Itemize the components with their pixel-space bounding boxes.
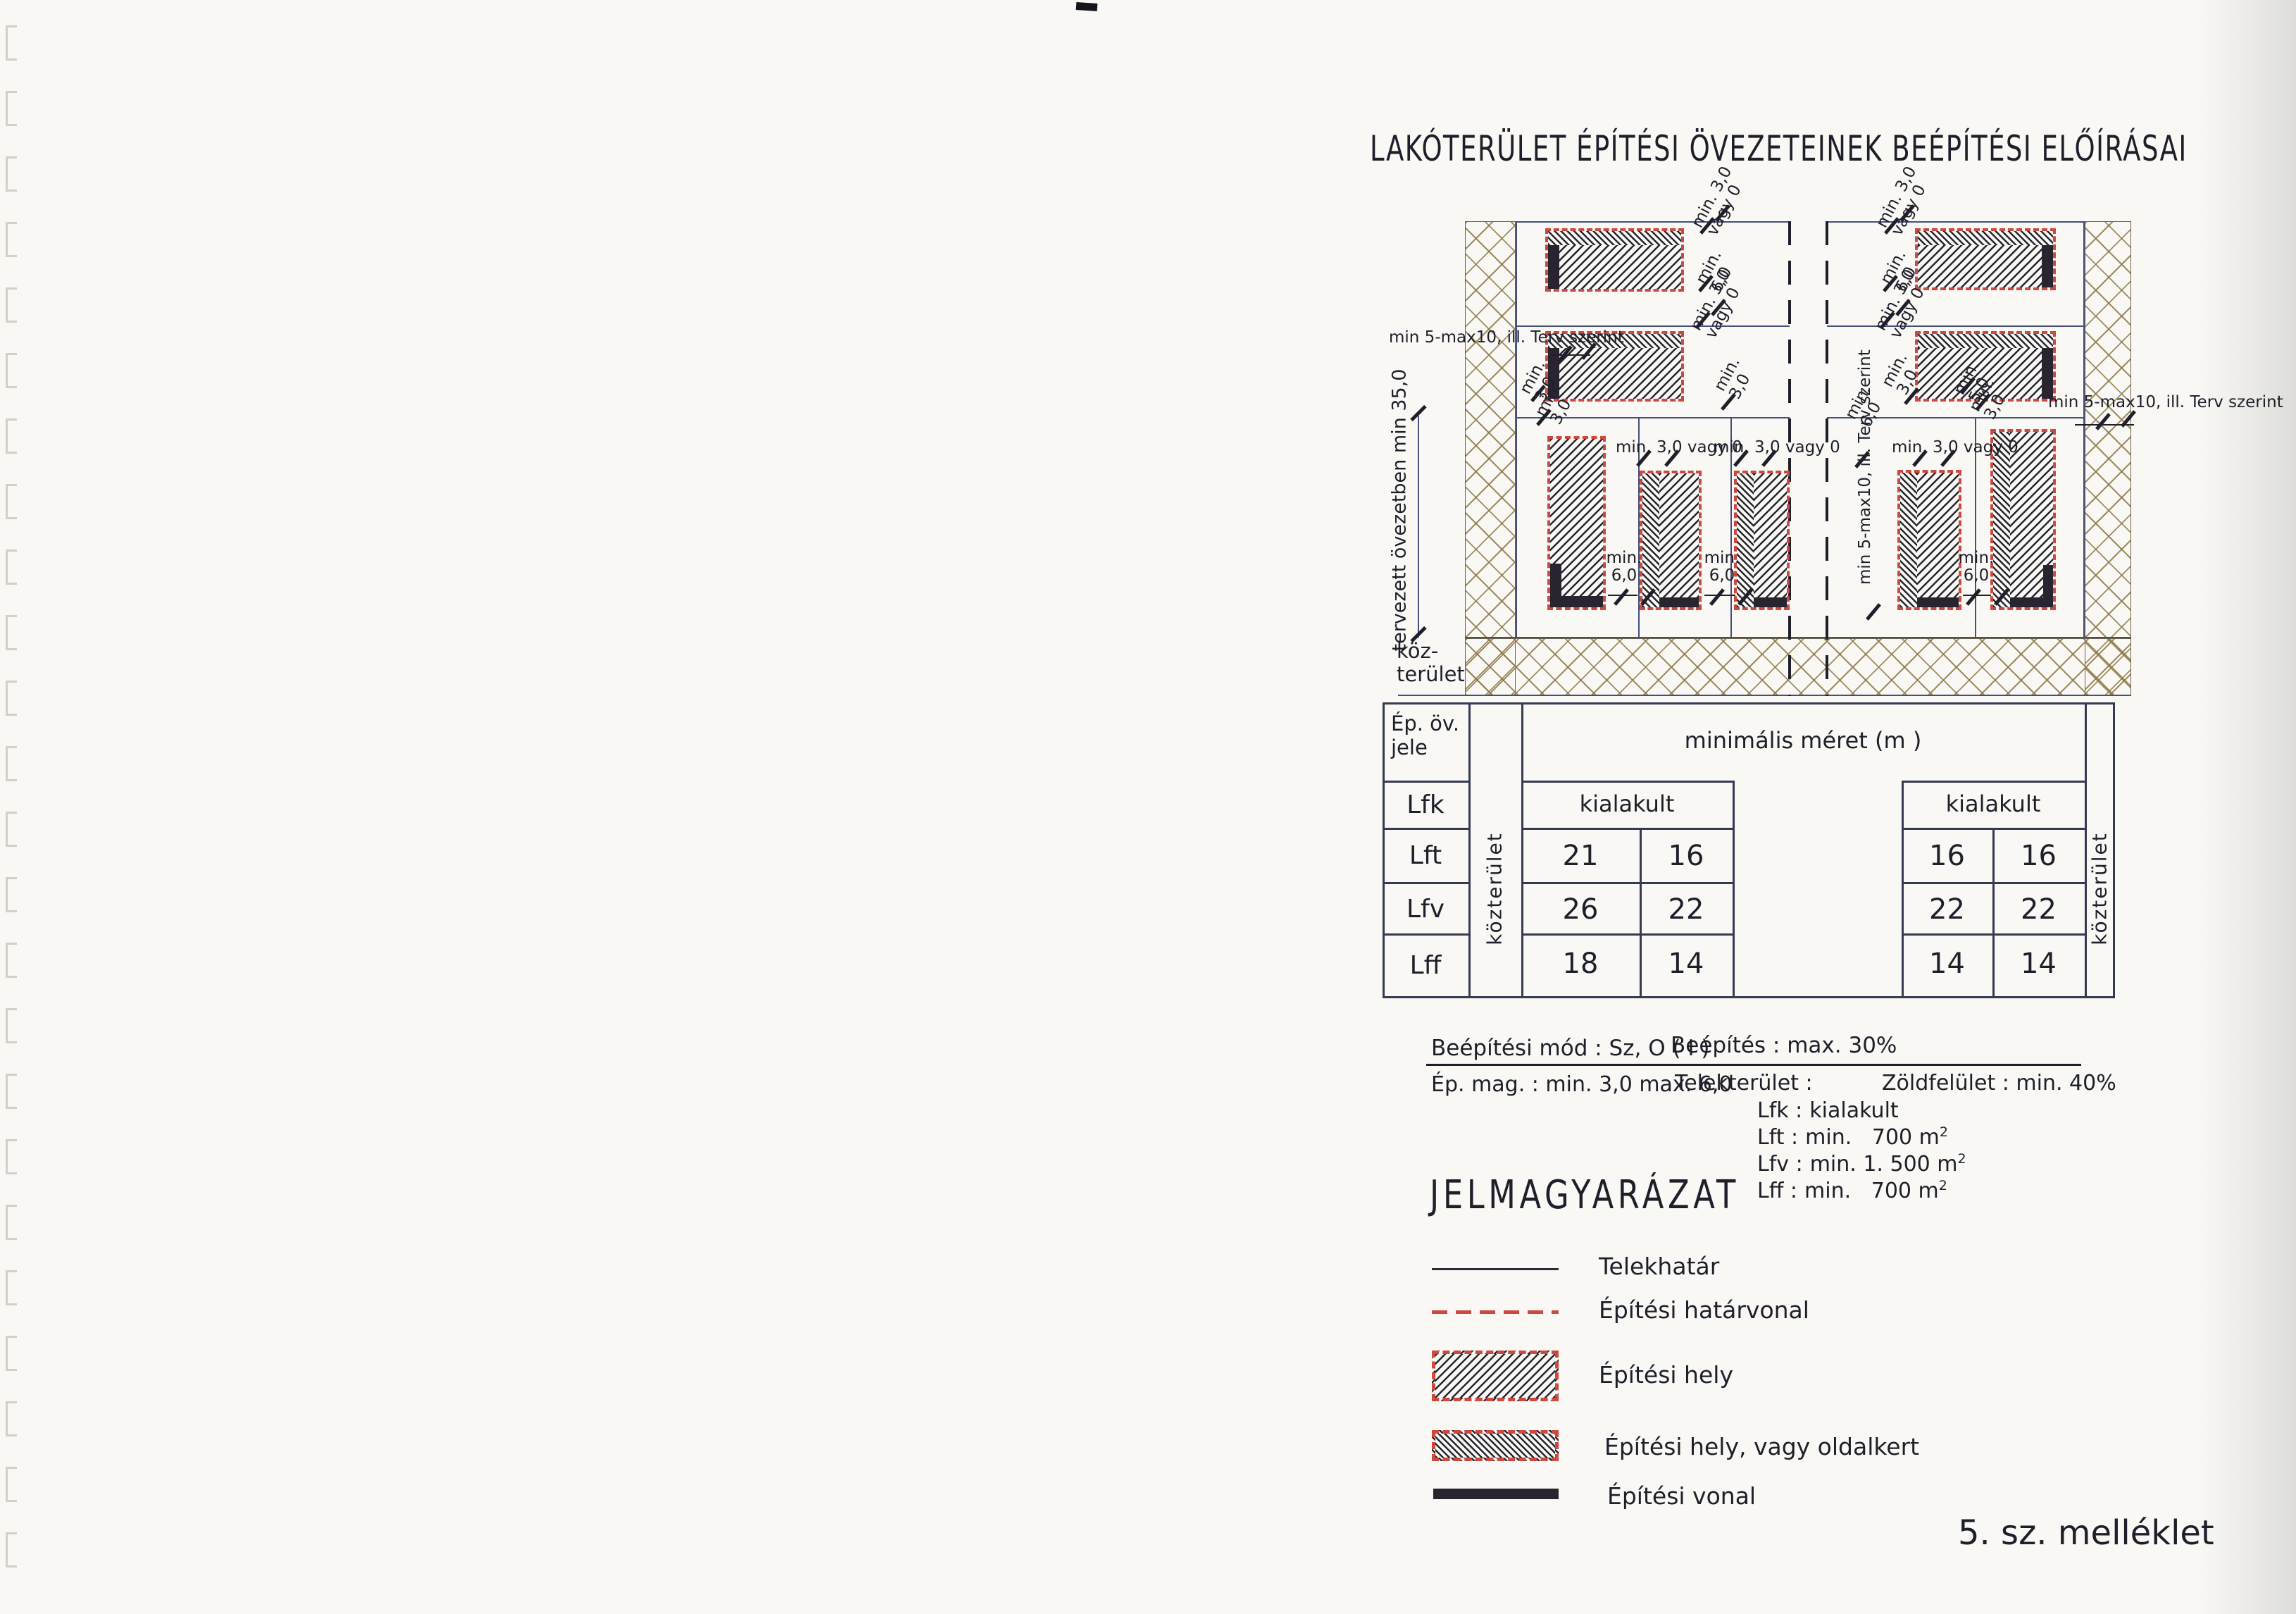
lot-boundary-line	[1827, 221, 2085, 223]
table-cell: 22	[1992, 893, 2085, 926]
punch-mark	[6, 812, 17, 847]
lot-boundary-dashed-line	[1788, 221, 1791, 696]
plot-size-item: Lft :min. 700 m2	[1757, 1124, 1948, 1150]
table-border	[1383, 828, 1471, 830]
legend-swatch-epitesi-hely	[1432, 1351, 1559, 1401]
building-area-hatch	[1659, 473, 1699, 607]
punch-mark	[6, 418, 17, 454]
lot-boundary-line	[1516, 325, 1790, 327]
lot-boundary-line	[1827, 325, 2085, 327]
dimension-tick	[1866, 603, 1881, 621]
punch-mark	[6, 1008, 17, 1043]
building-line-bar	[1550, 564, 1561, 607]
table-side-label-kozterulet: közterület	[2088, 819, 2111, 960]
building-zone-block	[1897, 470, 1961, 610]
table-cell: 16	[1902, 840, 1992, 872]
punch-mark	[6, 287, 17, 323]
punch-mark	[6, 25, 17, 61]
plot-size-item: Lfv :min. 1. 500 m2	[1757, 1151, 1966, 1177]
table-border	[1468, 702, 1471, 998]
dimension-label: min. 3,0vagy 0	[1689, 163, 1750, 238]
legend-swatch-epitesi-vonal	[1433, 1489, 1559, 1499]
attachment-note: 5. sz. melléklet	[1958, 1513, 2214, 1553]
table-cell: 22	[1902, 893, 1992, 926]
dimension-label: min. 3,0 vagy 0	[1714, 438, 1840, 457]
table-row-label: Lfv	[1383, 895, 1468, 924]
table-border	[2113, 702, 2115, 998]
table-cell: 14	[1992, 948, 2085, 980]
legend-label: Telekhatár	[1599, 1253, 1719, 1280]
lot-boundary-line	[1516, 221, 1790, 223]
dimension-tick	[1721, 393, 1736, 411]
table-border	[2085, 702, 2087, 998]
table-row-label: Lfk	[1383, 790, 1468, 819]
building-line-bar	[1754, 597, 1787, 607]
side-yard-band	[1918, 231, 2053, 245]
legend-swatch-epitesi-hatarvonal	[1432, 1310, 1559, 1314]
scan-speck	[1076, 2, 1098, 11]
table-cell: 16	[1640, 840, 1733, 872]
building-line-bar	[1659, 597, 1699, 607]
side-yard-band	[1900, 473, 1917, 607]
dimension-label: min.6,0	[1955, 550, 1997, 585]
table-border	[1521, 882, 1735, 884]
building-zone-block	[1545, 228, 1684, 292]
plot-size-item: Lff :min. 700 m2	[1757, 1178, 1947, 1203]
spec-mode: Beépítési mód : Sz, O ( I )	[1431, 1036, 1710, 1061]
spec-plot: Telekterület :	[1675, 1071, 1813, 1095]
punch-mark	[6, 1270, 17, 1305]
dimension-label: min. 3,0 vagy 0	[1892, 438, 2019, 457]
building-zone-block	[1547, 436, 1606, 610]
table-border	[1902, 781, 2087, 783]
table-header-min-size: minimális méret (m )	[1521, 727, 2085, 754]
table-subheader-kialakult: kialakult	[1902, 790, 2085, 817]
legend-label: Építési hely	[1599, 1361, 1733, 1389]
lot-boundary-line	[1465, 637, 2131, 638]
side-yard-band	[1918, 334, 2053, 348]
legend-heading: JELMAGYARÁZAT	[1430, 1172, 1740, 1218]
legend-swatch-epitesi-hely-oldalkert	[1432, 1430, 1559, 1461]
public-area-base-line	[1398, 695, 2131, 696]
building-zone-block	[1915, 228, 2056, 290]
table-cell: 21	[1521, 840, 1640, 872]
page-title: LAKÓTERÜLET ÉPÍTÉSI ÖVEZETEINEK BEÉPÍTÉS…	[1370, 128, 2188, 169]
punch-mark	[6, 1336, 17, 1371]
punch-mark	[6, 1205, 17, 1240]
table-cell: 26	[1521, 893, 1640, 926]
legend-label: Építési hely, vagy oldalkert	[1604, 1433, 1919, 1460]
punch-mark	[6, 943, 17, 978]
scan-edge-shadow	[2197, 0, 2296, 1614]
punch-mark	[6, 91, 17, 126]
lot-boundary-line	[1516, 221, 1517, 638]
spec-coverage: Beépítés : max. 30%	[1671, 1033, 1897, 1058]
table-border	[1733, 781, 1735, 998]
table-cell: 16	[1992, 840, 2085, 872]
table-side-label-kozterulet: közterület	[1483, 819, 1506, 960]
building-area-hatch	[1754, 473, 1787, 607]
dimension-label: min 5-max10, ill. Terv szerint	[2048, 393, 2283, 411]
punch-mark	[6, 615, 17, 650]
punch-mark	[6, 746, 17, 781]
legend-swatch-telekhatar	[1432, 1268, 1559, 1270]
table-cell: 18	[1521, 948, 1640, 980]
punch-mark	[6, 1401, 17, 1436]
public-area-hatch-bottom	[1465, 638, 2131, 696]
dimension-tick	[1614, 588, 1629, 606]
public-area-hatch-right	[2085, 221, 2131, 696]
table-border	[1383, 933, 1471, 936]
table-border	[1902, 828, 2087, 830]
building-line-bar	[1917, 597, 1959, 607]
table-row-label: Lft	[1383, 841, 1468, 870]
table-border	[1383, 996, 2114, 998]
building-area-hatch	[1548, 245, 1681, 289]
table-border	[1521, 933, 1735, 936]
table-cell: 14	[1902, 948, 1992, 980]
punch-mark	[6, 550, 17, 585]
building-line-bar	[2043, 565, 2053, 607]
side-yard-band	[1642, 473, 1659, 607]
table-header-zone-code: Ép. öv. jele	[1391, 712, 1459, 759]
dimension-label: min.6,0	[1701, 550, 1743, 585]
building-area-hatch	[1917, 473, 1959, 607]
punch-mark	[6, 353, 17, 388]
punch-mark	[6, 1532, 17, 1568]
building-line-bar	[2042, 245, 2053, 287]
dimension-label: min 5-max10, ill. Terv szerint	[1389, 328, 1549, 347]
table-cell: 22	[1640, 893, 1733, 926]
punch-mark	[6, 877, 17, 912]
lot-boundary-dashed-line	[1826, 221, 1828, 696]
spec-green: Zöldfelület : min. 40%	[1882, 1071, 2116, 1095]
lot-boundary-line	[2083, 221, 2085, 638]
dimension-line	[1418, 416, 1419, 638]
table-subheader-kialakult: kialakult	[1521, 790, 1733, 817]
building-area-hatch	[1918, 245, 2053, 287]
table-border	[1902, 933, 2087, 936]
dimension-label: min. 3,0vagy 0	[1873, 163, 1935, 238]
table-border	[1521, 828, 1735, 830]
table-row-label: Lff	[1383, 951, 1468, 980]
punch-mark	[6, 222, 17, 257]
document-page: LAKÓTERÜLET ÉPÍTÉSI ÖVEZETEINEK BEÉPÍTÉS…	[0, 0, 2296, 1614]
spec-divider	[1426, 1064, 2081, 1066]
punch-mark	[6, 681, 17, 716]
table-border	[1383, 882, 1471, 884]
table-border	[1521, 781, 1735, 783]
dimension-tick	[1966, 588, 1981, 606]
table-cell: 14	[1640, 948, 1733, 980]
table-border	[1902, 882, 2087, 884]
table-border	[1383, 702, 2114, 704]
building-zone-block	[1734, 471, 1790, 610]
side-yard-band	[1737, 473, 1754, 607]
plot-size-item: Lfk :kialakult	[1757, 1098, 1899, 1123]
axis-dimension-label: tervezett övezetben min 35,0	[1389, 405, 1411, 652]
table-border	[1383, 781, 1471, 783]
building-line-bar	[1548, 245, 1559, 289]
legend-label: Építési határvonal	[1599, 1296, 1809, 1324]
building-zone-block	[1640, 471, 1702, 610]
building-line-bar	[2042, 348, 2053, 399]
punch-mark	[6, 1074, 17, 1109]
side-yard-band	[1548, 231, 1681, 245]
public-area-label: köz- terület	[1397, 640, 1465, 686]
dimension-label: min.6,0	[1603, 550, 1645, 585]
punch-mark	[6, 1467, 17, 1502]
punch-mark	[6, 156, 17, 192]
dimension-tick	[1709, 588, 1725, 606]
public-area-hatch-left	[1465, 221, 1516, 696]
punch-mark	[6, 484, 17, 519]
punch-mark	[6, 1139, 17, 1174]
legend-label: Építési vonal	[1607, 1482, 1756, 1510]
